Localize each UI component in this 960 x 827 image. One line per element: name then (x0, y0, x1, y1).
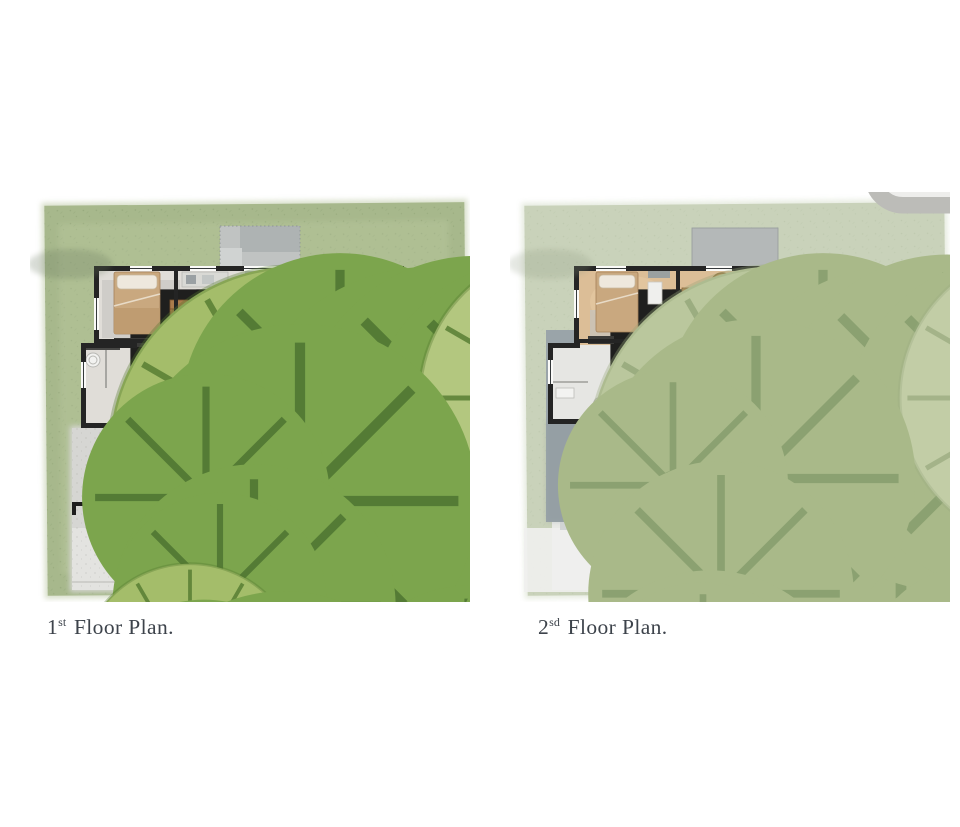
caption-number: 1 (47, 615, 58, 639)
porch-roof (692, 228, 778, 268)
caption-ordinal: sd (549, 615, 560, 629)
side-desk (648, 282, 662, 304)
toilet-icon (872, 192, 950, 205)
second-floor-caption: 2sd Floor Plan. (538, 615, 668, 640)
washer (86, 353, 100, 367)
caption-text: Floor Plan. (68, 615, 174, 639)
first-floor-plan-illustration (30, 192, 470, 602)
sink (556, 388, 574, 398)
first-floor-caption: 1st Floor Plan. (47, 615, 174, 640)
caption-ordinal: st (58, 615, 66, 629)
caption-number: 2 (538, 615, 549, 639)
caption-text: Floor Plan. (562, 615, 668, 639)
second-floor-plan-illustration (510, 192, 950, 602)
floor-plan-sheet: 1st Floor Plan. 2sd Floor Plan. (0, 0, 960, 827)
